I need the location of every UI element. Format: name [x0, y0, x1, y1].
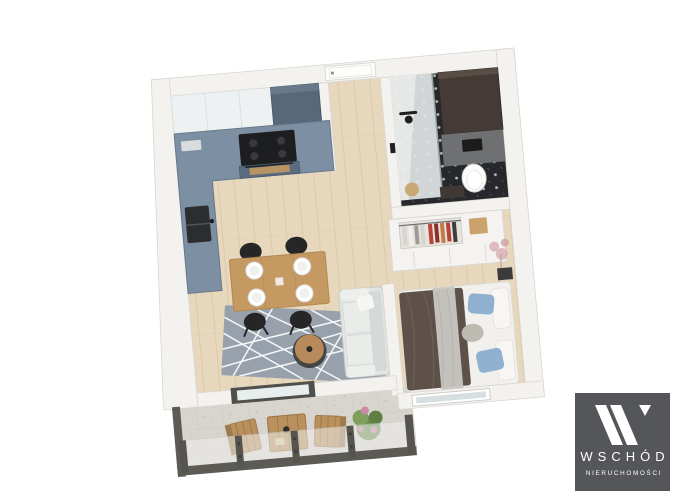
bed	[399, 281, 519, 392]
cooktop	[238, 130, 297, 167]
sofa-seat-cushion	[345, 334, 374, 366]
flush-plate	[462, 138, 483, 152]
floor-plan-image: WSCHÓD NIERUCHOMOŚCI	[0, 0, 688, 502]
wardrobe-storage-box	[469, 217, 488, 235]
logo-tagline-text: NIERUCHOMOŚCI	[586, 468, 662, 477]
counter-item	[181, 140, 202, 152]
bedroom	[388, 209, 523, 407]
table-centerpiece	[275, 277, 284, 286]
watermark-logo: WSCHÓD NIERUCHOMOŚCI	[575, 393, 670, 491]
sofa	[338, 286, 390, 378]
wall-faucet	[390, 143, 396, 153]
nightstand	[497, 267, 513, 280]
bathroom-bench	[440, 185, 465, 199]
logo-brand-text: WSCHÓD	[580, 449, 669, 464]
bed-pillow-white	[491, 288, 511, 329]
bed-pillow-blue	[467, 293, 494, 315]
living-bottom-wall	[197, 390, 234, 407]
